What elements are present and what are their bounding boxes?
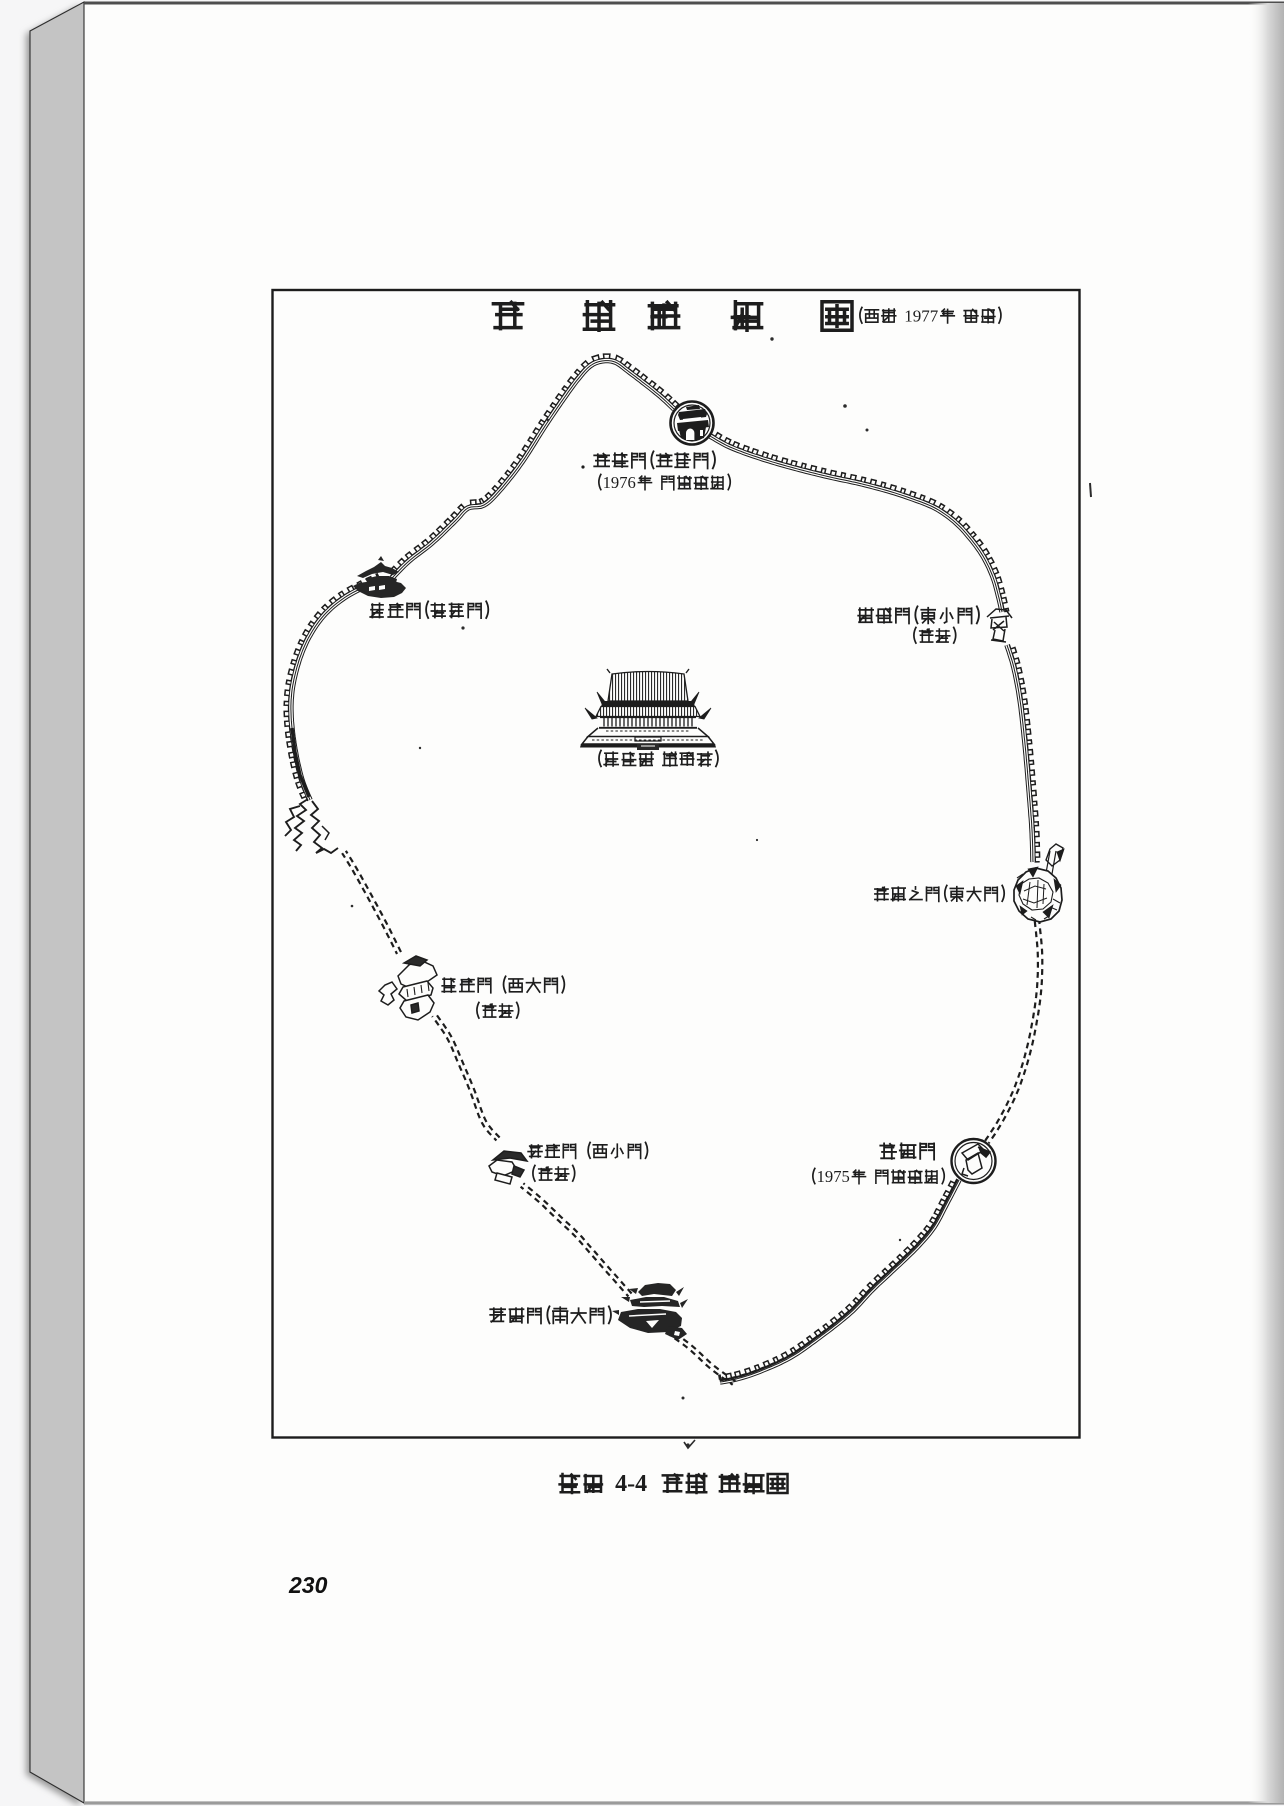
svg-text:230: 230: [288, 1572, 328, 1598]
svg-text:1976: 1976: [603, 473, 636, 492]
svg-text:1977: 1977: [904, 306, 939, 325]
svg-text:1975: 1975: [817, 1167, 850, 1186]
svg-text:4-4: 4-4: [615, 1471, 647, 1497]
